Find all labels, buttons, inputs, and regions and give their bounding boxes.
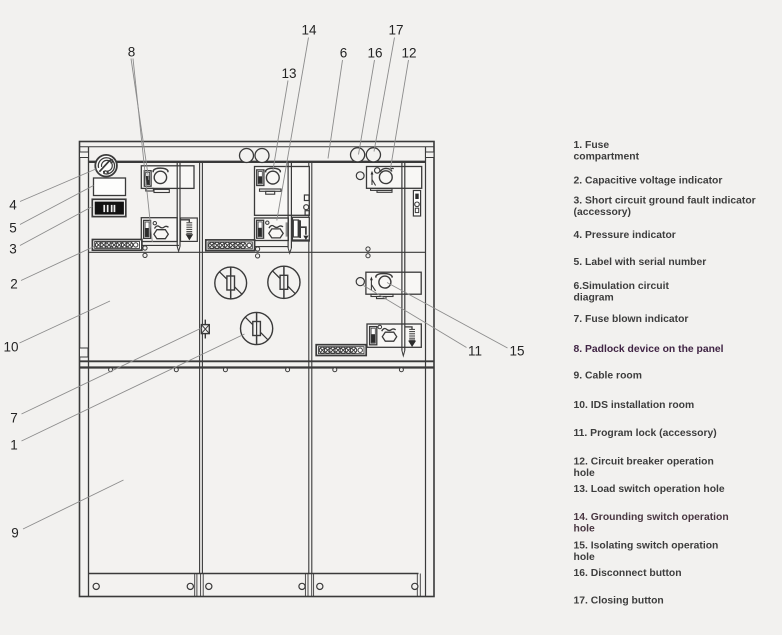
svg-text:9. Cable room: 9. Cable room [574, 371, 642, 382]
svg-text:6.Simulation circuit: 6.Simulation circuit [574, 281, 670, 292]
svg-text:11: 11 [468, 344, 482, 359]
svg-text:14. Grounding switch operation: 14. Grounding switch operation [574, 512, 729, 523]
svg-text:16: 16 [367, 46, 382, 61]
svg-text:11. Program lock (accessory): 11. Program lock (accessory) [574, 428, 717, 439]
svg-text:13. Load switch operation hole: 13. Load switch operation hole [574, 484, 725, 495]
svg-text:7. Fuse blown indicator: 7. Fuse blown indicator [574, 314, 689, 325]
svg-text:1: 1 [10, 438, 18, 453]
svg-text:10. IDS installation room: 10. IDS installation room [574, 400, 695, 411]
svg-text:7: 7 [10, 411, 18, 426]
svg-text:hole: hole [574, 524, 596, 535]
svg-text:1. Fuse: 1. Fuse [574, 140, 610, 151]
svg-text:8. Padlock device on the panel: 8. Padlock device on the panel [574, 344, 724, 355]
svg-text:5. Label with serial number: 5. Label with serial number [574, 257, 707, 268]
svg-text:2: 2 [10, 277, 18, 292]
svg-text:10: 10 [3, 340, 18, 355]
svg-text:8: 8 [128, 45, 136, 60]
svg-text:compartment: compartment [574, 152, 640, 163]
svg-text:2. Capacitive voltage indicato: 2. Capacitive voltage indicator [574, 176, 723, 187]
svg-text:3. Short circuit ground fault: 3. Short circuit ground fault indicator [574, 196, 756, 207]
svg-text:5: 5 [9, 221, 17, 236]
svg-text:4: 4 [9, 198, 17, 213]
svg-text:3: 3 [9, 242, 17, 257]
svg-text:17. Closing button: 17. Closing button [574, 596, 664, 607]
svg-text:16. Disconnect button: 16. Disconnect button [574, 568, 682, 579]
svg-text:hole: hole [574, 468, 596, 479]
svg-text:17: 17 [388, 23, 403, 38]
svg-text:15. Isolating switch operation: 15. Isolating switch operation [574, 541, 719, 552]
svg-text:15: 15 [509, 344, 524, 359]
svg-text:diagram: diagram [574, 293, 614, 304]
svg-text:6: 6 [340, 46, 348, 61]
svg-text:13: 13 [281, 66, 296, 81]
svg-text:9: 9 [11, 526, 19, 541]
svg-text:4. Pressure indicator: 4. Pressure indicator [574, 230, 676, 241]
svg-text:14: 14 [301, 23, 317, 38]
svg-text:(accessory): (accessory) [574, 207, 632, 218]
svg-text:hole: hole [574, 552, 596, 563]
svg-text:12. Circuit breaker operation: 12. Circuit breaker operation [574, 457, 714, 468]
svg-text:12: 12 [401, 46, 416, 61]
